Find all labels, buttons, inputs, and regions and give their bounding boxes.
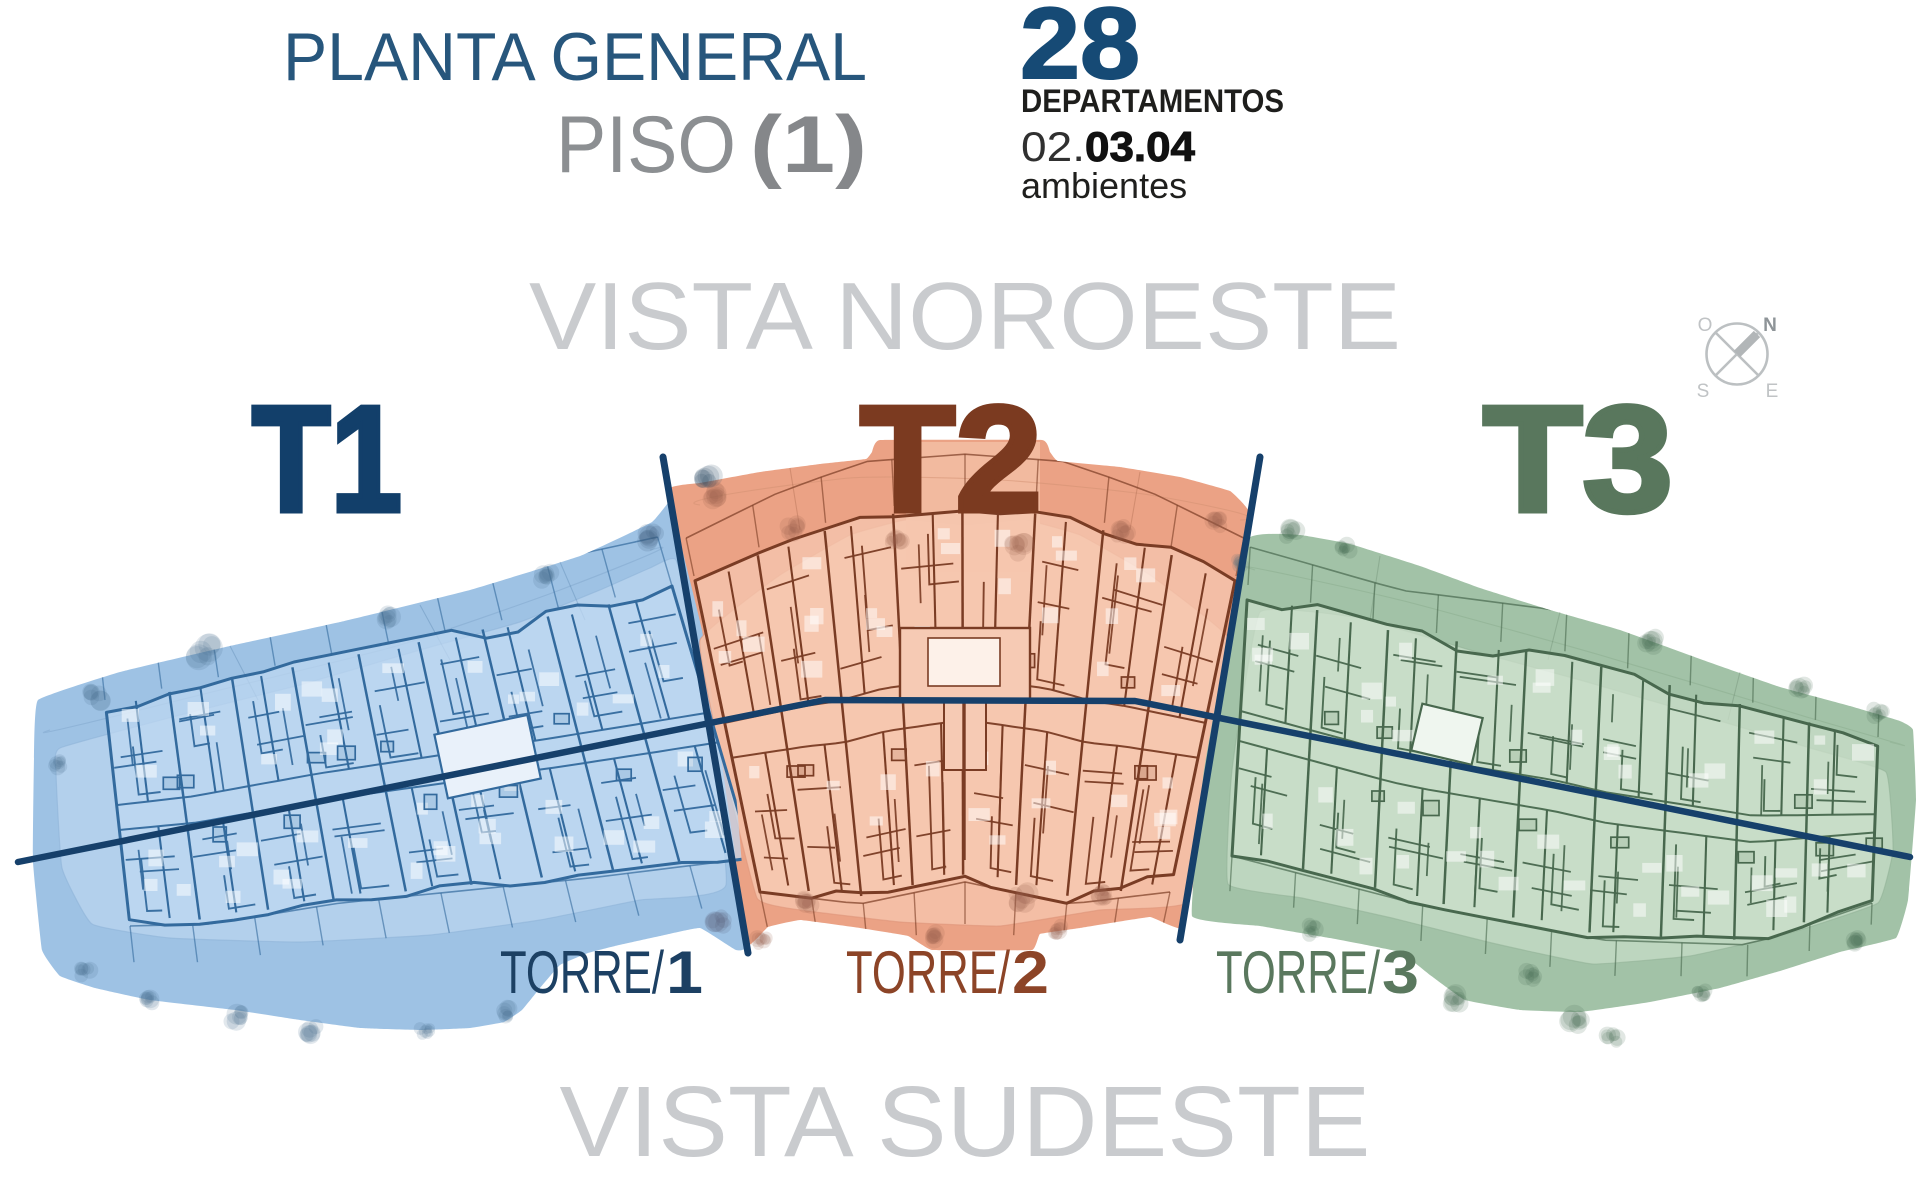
- svg-text:2: 2: [1012, 939, 1049, 1006]
- svg-text:PISO: PISO: [556, 100, 736, 190]
- svg-text:1: 1: [666, 939, 703, 1006]
- svg-text:TORRE/: TORRE/: [1216, 939, 1380, 1006]
- svg-text:02.: 02.: [1021, 123, 1085, 170]
- svg-text:T3: T3: [1483, 374, 1673, 543]
- svg-text:TORRE/: TORRE/: [846, 939, 1010, 1006]
- svg-text:(1): (1): [750, 100, 867, 190]
- svg-text:VISTA SUDESTE: VISTA SUDESTE: [560, 1066, 1371, 1178]
- svg-text:T2: T2: [860, 374, 1042, 543]
- svg-text:T1: T1: [252, 374, 402, 543]
- svg-text:3: 3: [1382, 939, 1419, 1006]
- svg-text:ambientes: ambientes: [1021, 165, 1187, 206]
- svg-text:PLANTA GENERAL: PLANTA GENERAL: [283, 19, 867, 95]
- svg-text:DEPARTAMENTOS: DEPARTAMENTOS: [1021, 83, 1284, 119]
- svg-text:TORRE/: TORRE/: [500, 939, 664, 1006]
- svg-text:03.04: 03.04: [1085, 123, 1196, 170]
- svg-text:VISTA NOROESTE: VISTA NOROESTE: [529, 263, 1401, 370]
